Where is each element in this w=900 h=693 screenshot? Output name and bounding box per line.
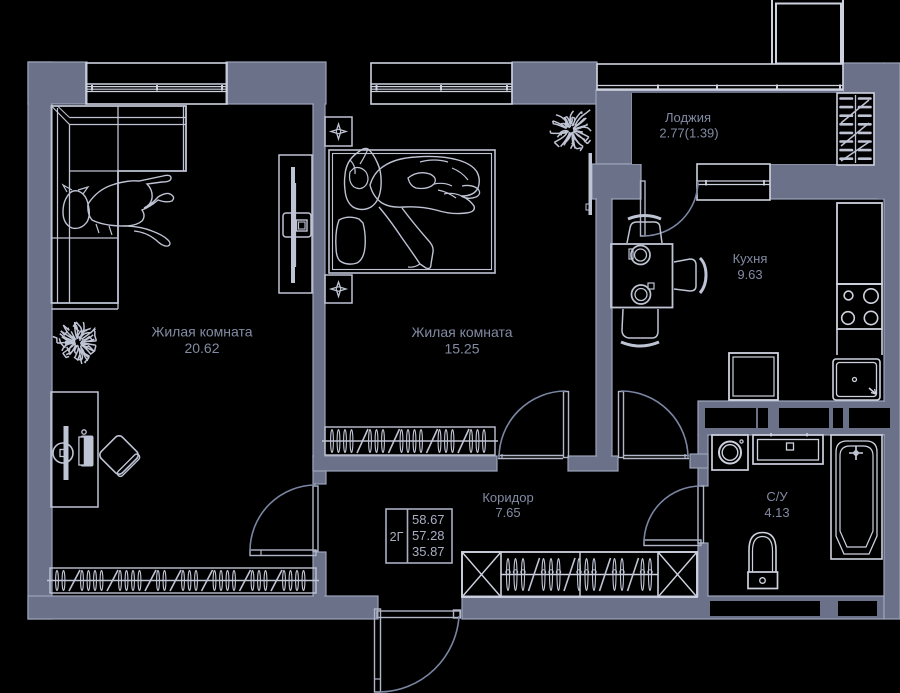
svg-text:4.13: 4.13	[764, 505, 789, 520]
svg-text:7.65: 7.65	[495, 505, 520, 520]
svg-text:58.67: 58.67	[412, 512, 445, 527]
svg-text:Жилая комната: Жилая комната	[411, 324, 512, 340]
svg-text:20.62: 20.62	[184, 340, 219, 356]
svg-text:Коридор: Коридор	[482, 490, 533, 505]
svg-text:С/У: С/У	[766, 489, 788, 504]
svg-text:Лоджия: Лоджия	[665, 110, 711, 125]
svg-text:9.63: 9.63	[737, 267, 762, 282]
svg-text:35.87: 35.87	[412, 544, 445, 559]
svg-text:Жилая комната: Жилая комната	[151, 324, 252, 340]
svg-text:Кухня: Кухня	[733, 251, 768, 266]
svg-text:15.25: 15.25	[444, 341, 479, 357]
svg-text:57.28: 57.28	[412, 528, 445, 543]
svg-text:2.77(1.39): 2.77(1.39)	[659, 126, 718, 141]
svg-text:2Г: 2Г	[390, 530, 404, 544]
